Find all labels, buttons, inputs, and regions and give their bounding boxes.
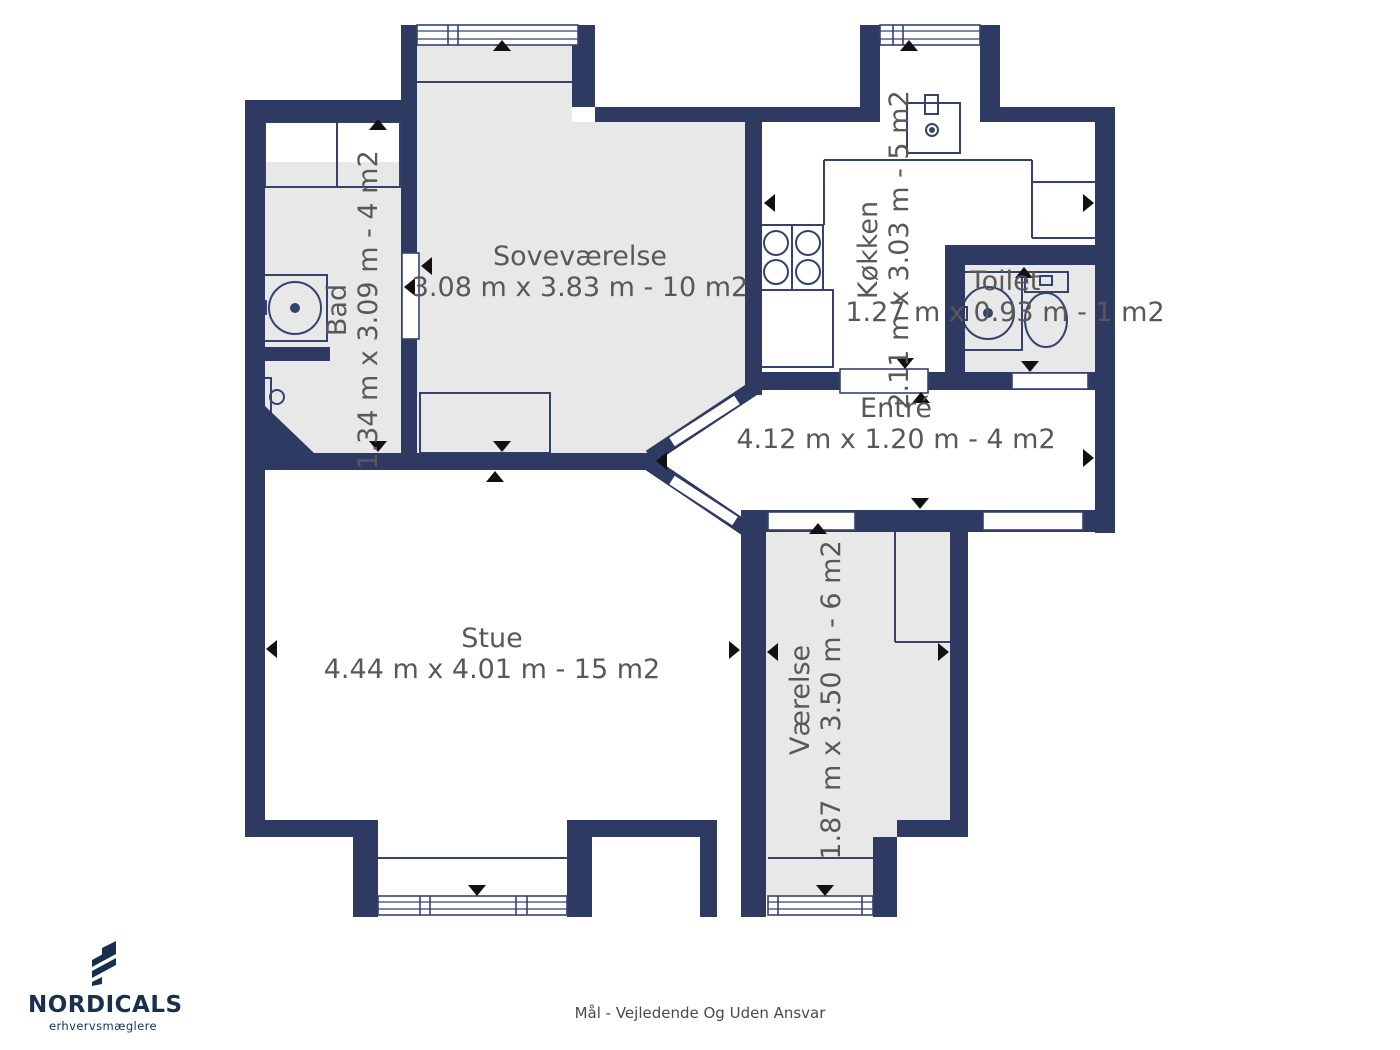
disclaimer-text: Mål - Vejledende Og Uden Ansvar [0, 1004, 1400, 1022]
floorplan-drawing [0, 0, 1400, 1050]
stove-icon [760, 225, 823, 290]
nordicals-logo-icon [86, 938, 120, 986]
kitchen-counter-icon [760, 290, 833, 367]
kitchen-sink-icon [907, 95, 960, 153]
floorplan-page: Soveværelse 3.08 m x 3.83 m - 10 m2 Bad … [0, 0, 1400, 1050]
